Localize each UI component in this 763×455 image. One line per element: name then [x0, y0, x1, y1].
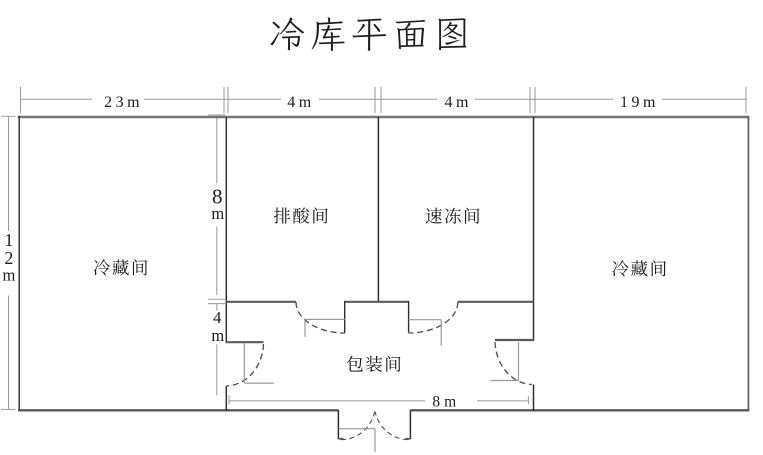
svg-text:4: 4 — [213, 308, 221, 327]
svg-text:8m: 8m — [432, 393, 460, 410]
svg-text:23m: 23m — [104, 94, 143, 111]
svg-text:4m: 4m — [444, 94, 471, 111]
svg-text:m: m — [2, 266, 15, 285]
svg-text:4m: 4m — [287, 94, 314, 111]
svg-text:1: 1 — [4, 230, 13, 250]
svg-text:m: m — [211, 326, 224, 345]
svg-text:19m: 19m — [620, 94, 659, 111]
svg-text:m: m — [211, 204, 224, 223]
